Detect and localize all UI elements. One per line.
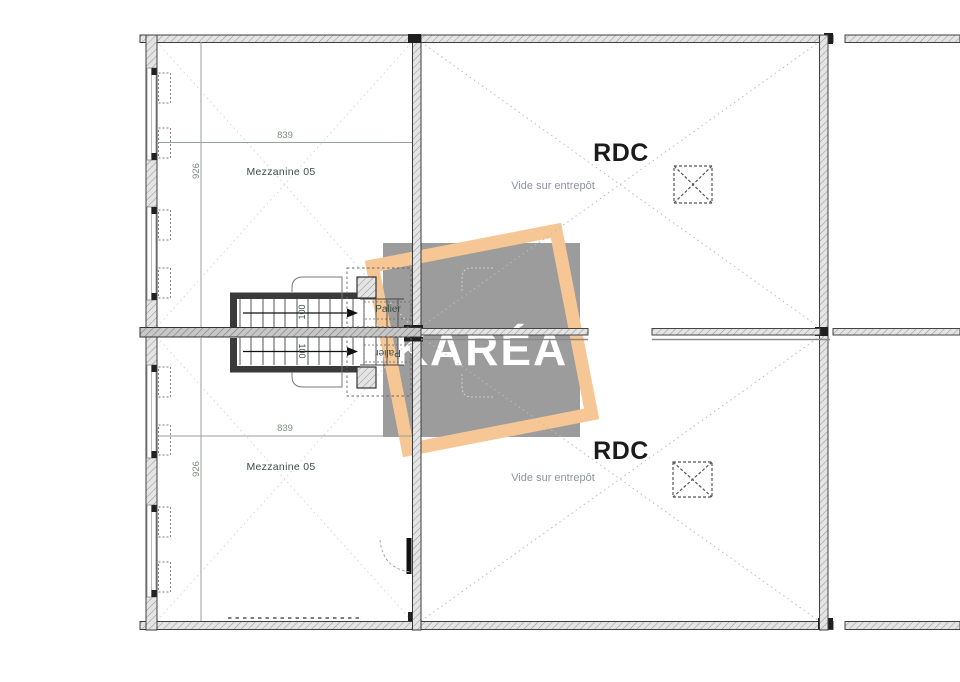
floor-plan-canvas: KARÉA <box>0 0 960 682</box>
door-swing-arc <box>380 540 411 572</box>
bottom-wall <box>140 612 960 630</box>
stairs-bottom <box>230 337 493 397</box>
top-wall <box>140 33 960 44</box>
rdc-bottom-diagonals <box>421 337 819 621</box>
stairs-top <box>230 268 493 327</box>
floor-plan-drawing <box>0 0 960 682</box>
skylight-bottom <box>673 462 712 497</box>
door-leaf <box>407 538 412 574</box>
rdc-top-diagonals <box>421 42 819 327</box>
skylight-top <box>674 166 712 203</box>
